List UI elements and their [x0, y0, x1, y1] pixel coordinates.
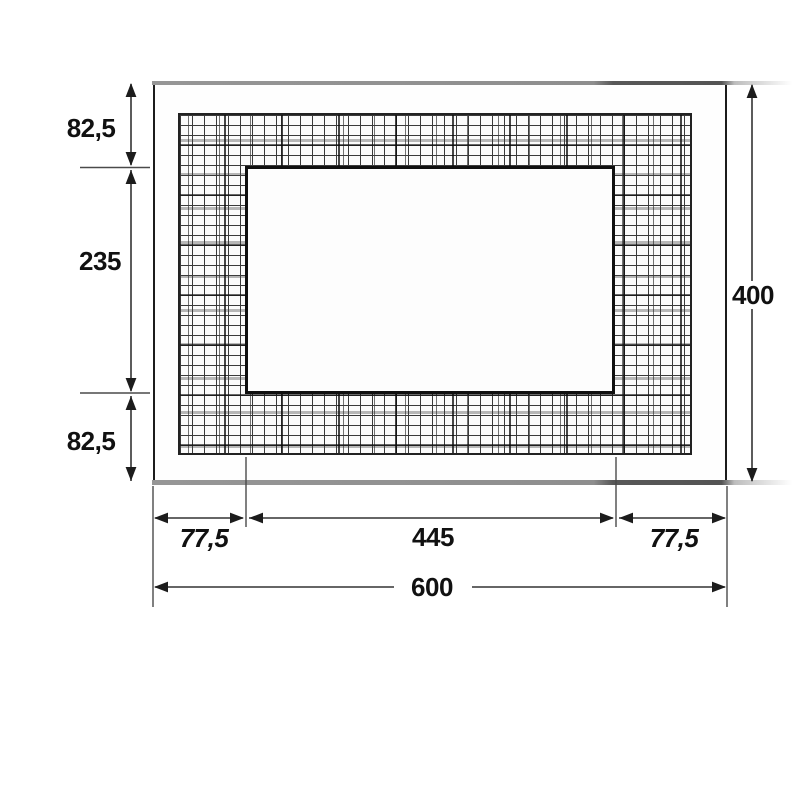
dim-label-total-height: 400 — [728, 282, 778, 308]
frame-bottom-edge — [152, 480, 792, 485]
dim-label-total-width: 600 — [407, 574, 457, 600]
dim-label-right-margin: 77,5 — [650, 525, 699, 551]
dim-label-cutout-width: 445 — [412, 524, 454, 550]
dim-label-cutout-height: 235 — [79, 248, 121, 274]
dim-label-left-margin: 77,5 — [180, 525, 229, 551]
dim-label-bottom-margin: 82,5 — [67, 428, 116, 454]
cutout-opening — [245, 166, 615, 394]
technical-drawing-canvas: 82,5 235 82,5 400 77,5 445 77,5 600 — [0, 0, 800, 800]
dim-label-top-margin: 82,5 — [67, 115, 116, 141]
frame-top-edge — [152, 81, 792, 85]
